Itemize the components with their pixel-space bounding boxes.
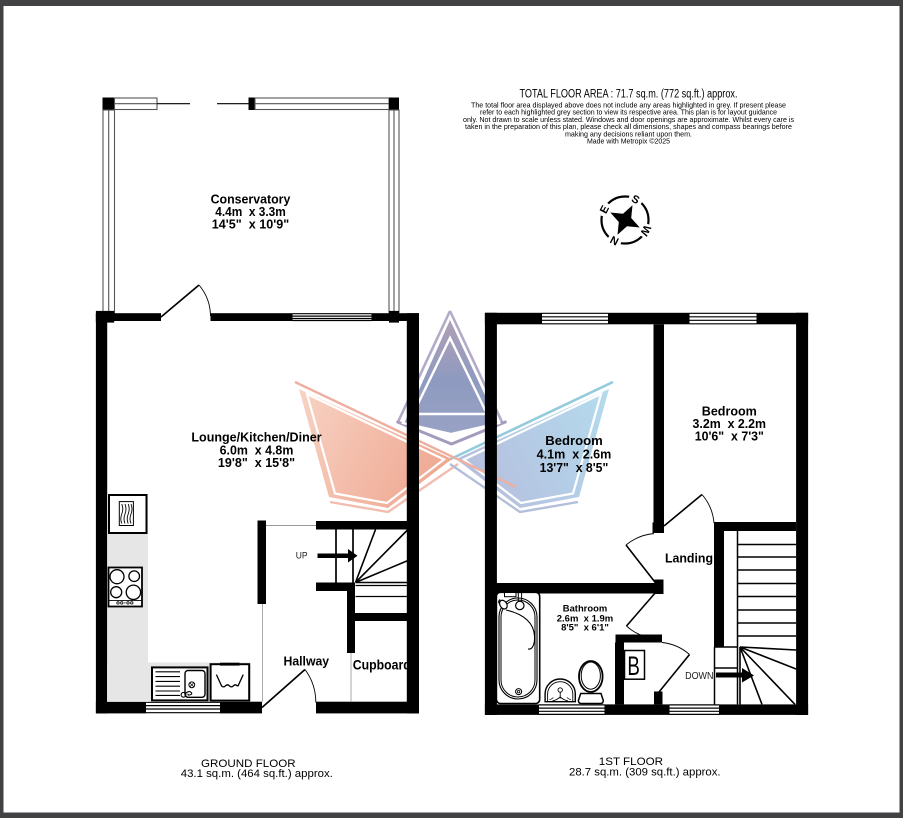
svg-text:6.0m x 4.8m: 6.0m x 4.8m bbox=[220, 443, 294, 457]
svg-text:Landing: Landing bbox=[665, 552, 713, 566]
svg-text:B: B bbox=[627, 651, 640, 681]
svg-text:10'6" x 7'3": 10'6" x 7'3" bbox=[695, 429, 764, 443]
svg-text:8'5" x 6'1": 8'5" x 6'1" bbox=[561, 623, 609, 634]
svg-text:Cupboard: Cupboard bbox=[353, 656, 411, 672]
svg-text:14'5" x 10'9": 14'5" x 10'9" bbox=[212, 218, 290, 232]
svg-text:UP: UP bbox=[296, 551, 308, 561]
svg-text:Hallway: Hallway bbox=[284, 654, 330, 668]
svg-text:28.7 sq.m. (309 sq.ft.) approx: 28.7 sq.m. (309 sq.ft.) approx. bbox=[569, 767, 721, 779]
svg-text:Lounge/Kitchen/Diner: Lounge/Kitchen/Diner bbox=[191, 430, 321, 444]
svg-text:19'8" x 15'8": 19'8" x 15'8" bbox=[218, 456, 295, 470]
svg-text:43.1 sq.m. (464 sq.ft.) approx: 43.1 sq.m. (464 sq.ft.) approx. bbox=[181, 768, 333, 780]
svg-text:4.1m x 2.6m: 4.1m x 2.6m bbox=[537, 448, 612, 462]
svg-text:13'7" x 8'5": 13'7" x 8'5" bbox=[540, 461, 609, 475]
svg-text:TOTAL FLOOR AREA : 71.7 sq.m.: TOTAL FLOOR AREA : 71.7 sq.m. (772 sq.ft… bbox=[520, 89, 738, 101]
svg-text:DOWN: DOWN bbox=[685, 671, 713, 682]
svg-text:Bedroom: Bedroom bbox=[545, 434, 603, 448]
svg-text:Made with Metropix ©2025: Made with Metropix ©2025 bbox=[587, 137, 670, 146]
